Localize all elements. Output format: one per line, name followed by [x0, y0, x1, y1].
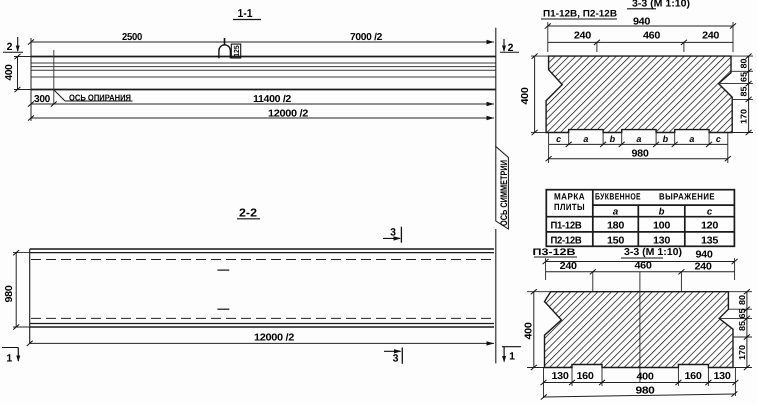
svg-text:130: 130 [714, 371, 732, 382]
svg-text:85: 85 [739, 86, 749, 96]
svg-text:с: с [707, 207, 713, 218]
svg-text:11400 /2: 11400 /2 [253, 94, 292, 105]
svg-text:400: 400 [520, 87, 531, 105]
svg-text:240: 240 [560, 261, 578, 272]
svg-text:400: 400 [4, 64, 15, 81]
svg-text:180: 180 [607, 221, 625, 232]
svg-text:980: 980 [636, 385, 656, 396]
svg-text:940: 940 [696, 250, 714, 261]
svg-text:а: а [583, 134, 588, 144]
svg-text:ВЫРАЖЕНИЕ: ВЫРАЖЕНИЕ [659, 192, 715, 202]
svg-text:а: а [636, 134, 641, 144]
svg-text:12000 /2: 12000 /2 [254, 333, 295, 344]
svg-text:160: 160 [577, 371, 595, 382]
svg-text:7000 /2: 7000 /2 [350, 32, 383, 43]
svg-text:65: 65 [737, 308, 747, 318]
svg-text:240: 240 [574, 30, 592, 41]
svg-text:с: с [716, 134, 721, 144]
svg-text:460: 460 [643, 30, 661, 41]
svg-text:а: а [613, 207, 618, 218]
svg-text:170: 170 [739, 109, 749, 124]
svg-text:460: 460 [635, 261, 653, 272]
svg-text:240: 240 [695, 262, 713, 273]
svg-text:b: b [663, 134, 669, 144]
svg-text:b: b [659, 207, 665, 218]
svg-text:3-3 (М 1:10): 3-3 (М 1:10) [624, 247, 682, 258]
svg-text:125: 125 [232, 45, 241, 57]
svg-text:980: 980 [632, 149, 650, 160]
svg-text:170: 170 [737, 345, 747, 360]
svg-text:МАРКА: МАРКА [554, 192, 585, 202]
svg-text:а: а [689, 134, 694, 144]
svg-text:ОСЬ СИММЕТРИИ: ОСЬ СИММЕТРИИ [499, 160, 510, 226]
svg-text:80: 80 [737, 295, 747, 305]
svg-text:80: 80 [739, 58, 749, 68]
svg-text:160: 160 [685, 371, 703, 382]
svg-text:120: 120 [701, 221, 719, 232]
svg-text:980: 980 [4, 285, 15, 303]
svg-text:100: 100 [653, 221, 671, 232]
svg-text:240: 240 [702, 30, 720, 41]
svg-text:БУКВЕННОЕ: БУКВЕННОЕ [595, 192, 641, 202]
svg-text:П1-12В: П1-12В [551, 221, 582, 232]
svg-text:65: 65 [739, 72, 749, 82]
svg-text:с: с [556, 134, 561, 144]
svg-text:150: 150 [607, 236, 625, 247]
svg-text:2: 2 [7, 41, 13, 53]
svg-text:85: 85 [737, 321, 747, 331]
svg-text:2-2: 2-2 [239, 208, 257, 220]
svg-text:130: 130 [552, 371, 570, 382]
svg-text:ПЛИТЫ: ПЛИТЫ [554, 202, 585, 212]
svg-text:135: 135 [701, 236, 719, 247]
svg-text:b: b [610, 134, 616, 144]
svg-text:3: 3 [393, 353, 399, 365]
svg-text:300: 300 [34, 94, 51, 105]
svg-text:12000 /2: 12000 /2 [268, 109, 309, 120]
svg-text:2500: 2500 [122, 32, 143, 43]
svg-text:400: 400 [524, 322, 535, 340]
svg-text:П2-12В: П2-12В [551, 236, 582, 247]
svg-text:1: 1 [6, 353, 12, 365]
svg-text:1: 1 [509, 351, 515, 363]
svg-text:1-1: 1-1 [238, 8, 254, 20]
svg-text:130: 130 [653, 236, 671, 247]
svg-text:П3-12В: П3-12В [533, 247, 576, 258]
svg-text:3-3 (М 1:10): 3-3 (М 1:10) [632, 0, 690, 10]
svg-text:400: 400 [637, 372, 655, 383]
svg-text:П1-12В, П2-12В: П1-12В, П2-12В [543, 9, 617, 20]
